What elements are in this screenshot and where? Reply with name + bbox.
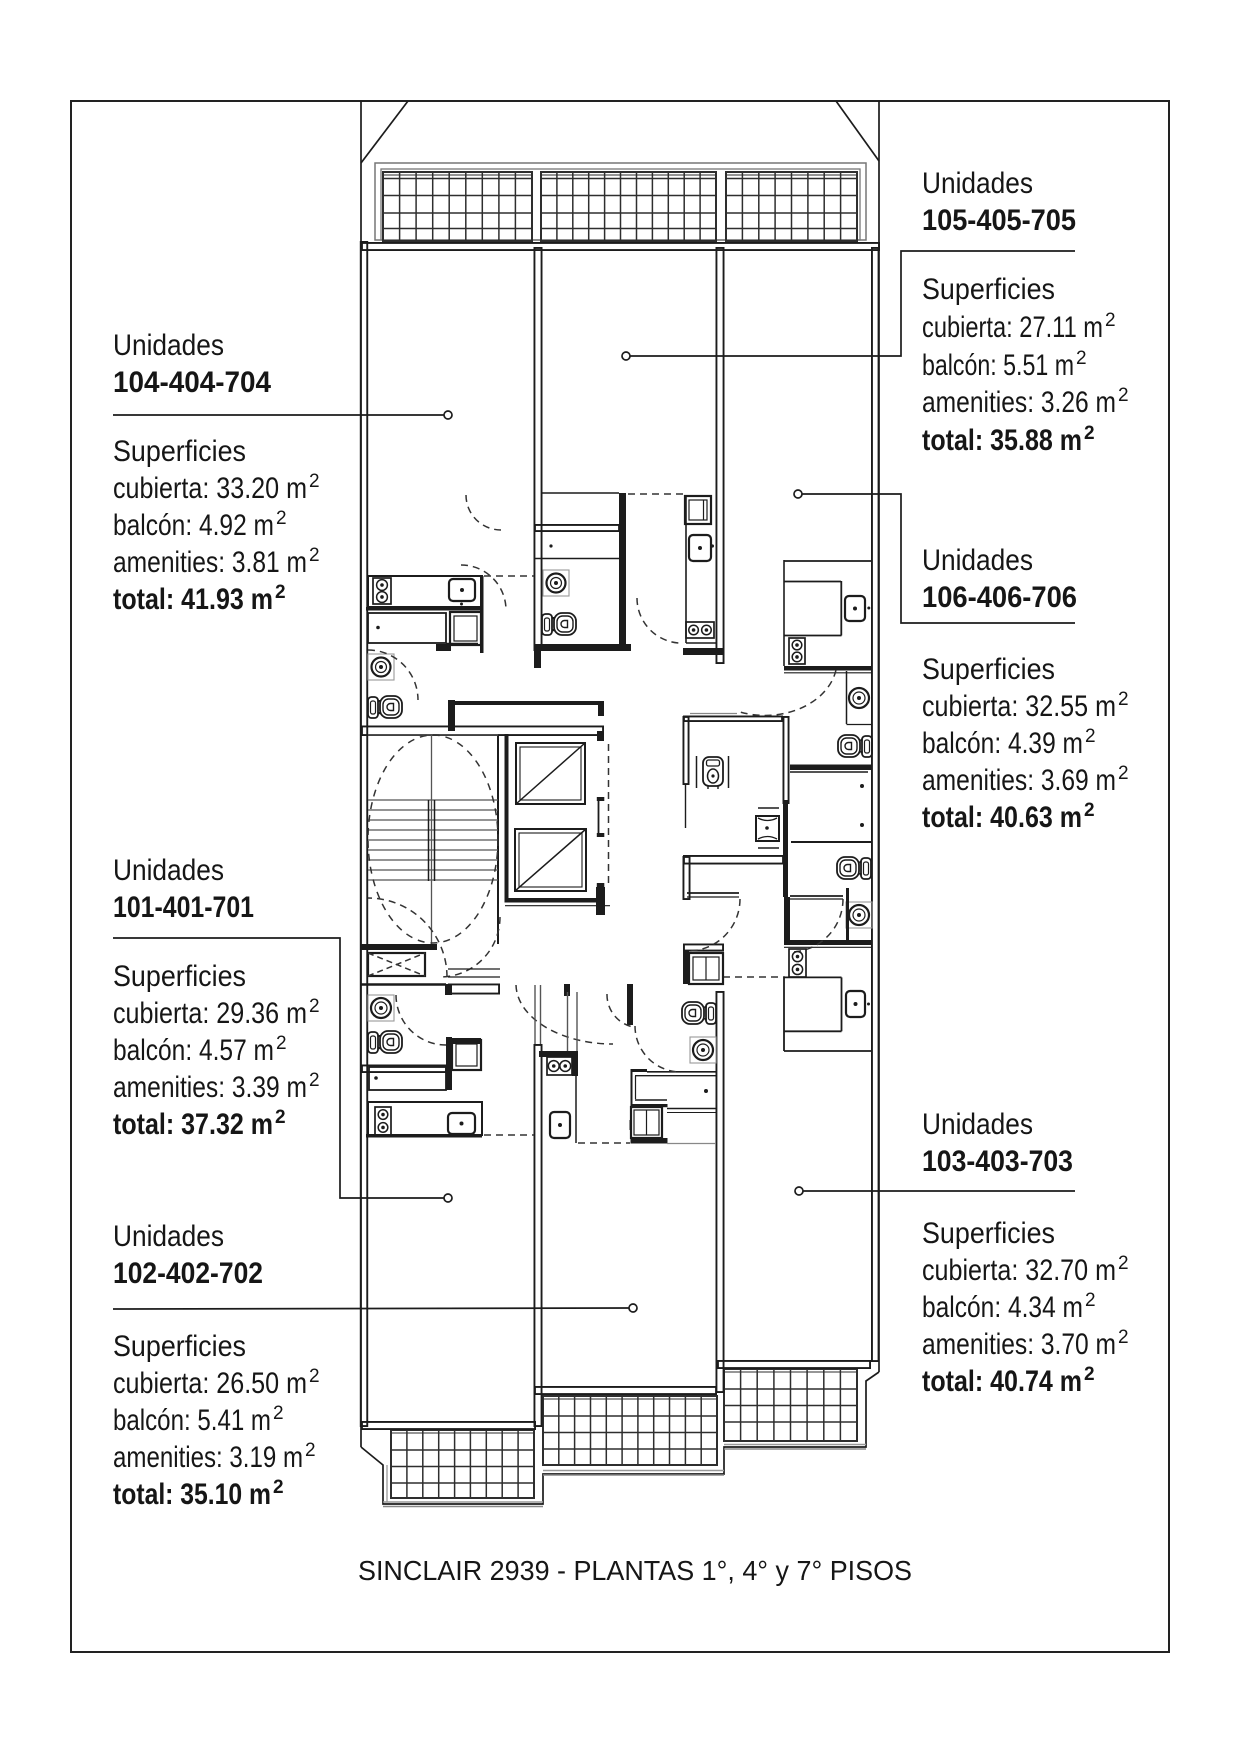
svg-text:104-404-704: 104-404-704: [113, 366, 271, 399]
svg-text:2: 2: [309, 1366, 320, 1387]
svg-text:cubierta: 32.70 m: cubierta: 32.70 m: [922, 1254, 1116, 1287]
svg-text:2: 2: [1076, 348, 1087, 369]
svg-text:2: 2: [305, 1440, 316, 1461]
svg-text:Unidades: Unidades: [922, 167, 1033, 200]
svg-text:2: 2: [273, 1477, 284, 1498]
svg-text:total: 35.10 m: total: 35.10 m: [113, 1478, 271, 1511]
svg-text:total: 37.32 m: total: 37.32 m: [113, 1108, 273, 1141]
svg-text:101-401-701: 101-401-701: [113, 891, 254, 924]
svg-text:2: 2: [1084, 423, 1095, 444]
svg-text:amenities: 3.26 m: amenities: 3.26 m: [922, 386, 1116, 419]
svg-text:102-402-702: 102-402-702: [113, 1257, 263, 1290]
svg-text:SINCLAIR 2939 - PLANTAS 1°, 4°: SINCLAIR 2939 - PLANTAS 1°, 4° y 7° PISO…: [358, 1555, 912, 1586]
svg-text:Superficies: Superficies: [922, 1217, 1055, 1250]
svg-text:balcón: 4.92 m: balcón: 4.92 m: [113, 509, 274, 542]
svg-text:2: 2: [275, 1107, 286, 1128]
svg-text:2: 2: [273, 1403, 284, 1424]
svg-text:amenities: 3.70 m: amenities: 3.70 m: [922, 1328, 1116, 1361]
svg-text:amenities: 3.69 m: amenities: 3.69 m: [922, 764, 1116, 797]
svg-text:Superficies: Superficies: [922, 653, 1055, 686]
svg-text:2: 2: [1118, 763, 1129, 784]
svg-text:Superficies: Superficies: [113, 1330, 246, 1363]
svg-text:2: 2: [309, 545, 320, 566]
svg-text:Unidades: Unidades: [113, 329, 224, 362]
svg-text:balcón: 5.41 m: balcón: 5.41 m: [113, 1404, 271, 1437]
svg-text:2: 2: [1084, 1364, 1095, 1385]
svg-text:Unidades: Unidades: [113, 1220, 224, 1253]
svg-text:2: 2: [275, 582, 286, 603]
svg-text:amenities: 3.39 m: amenities: 3.39 m: [113, 1071, 307, 1104]
svg-text:cubierta: 26.50 m: cubierta: 26.50 m: [113, 1367, 307, 1400]
svg-text:cubierta: 29.36 m: cubierta: 29.36 m: [113, 997, 307, 1030]
svg-text:amenities: 3.81 m: amenities: 3.81 m: [113, 546, 307, 579]
svg-text:2: 2: [1118, 1253, 1129, 1274]
svg-text:Superficies: Superficies: [113, 435, 246, 468]
svg-text:balcón: 4.39 m: balcón: 4.39 m: [922, 727, 1083, 760]
svg-text:Unidades: Unidades: [113, 854, 224, 887]
svg-text:2: 2: [1118, 385, 1129, 406]
svg-text:2: 2: [1118, 1327, 1129, 1348]
svg-text:2: 2: [276, 508, 287, 529]
svg-text:2: 2: [1085, 1290, 1096, 1311]
svg-text:balcón: 5.51 m: balcón: 5.51 m: [922, 349, 1074, 382]
svg-text:balcón: 4.34 m: balcón: 4.34 m: [922, 1291, 1083, 1324]
svg-text:Unidades: Unidades: [922, 1108, 1033, 1141]
svg-text:total: 40.74 m: total: 40.74 m: [922, 1365, 1082, 1398]
svg-text:total: 40.63 m: total: 40.63 m: [922, 801, 1082, 834]
svg-text:2: 2: [276, 1033, 287, 1054]
svg-text:cubierta: 27.11 m: cubierta: 27.11 m: [922, 311, 1103, 344]
svg-text:Superficies: Superficies: [113, 960, 246, 993]
svg-text:2: 2: [1084, 800, 1095, 821]
svg-text:2: 2: [1105, 310, 1116, 331]
svg-text:Superficies: Superficies: [922, 273, 1055, 306]
svg-text:2: 2: [309, 1070, 320, 1091]
svg-text:106-406-706: 106-406-706: [922, 581, 1077, 614]
svg-text:Unidades: Unidades: [922, 544, 1033, 577]
svg-text:103-403-703: 103-403-703: [922, 1145, 1073, 1178]
svg-text:2: 2: [1118, 689, 1129, 710]
svg-text:balcón: 4.57 m: balcón: 4.57 m: [113, 1034, 274, 1067]
svg-text:2: 2: [309, 471, 320, 492]
svg-text:cubierta: 33.20 m: cubierta: 33.20 m: [113, 472, 307, 505]
svg-text:total: 41.93 m: total: 41.93 m: [113, 583, 273, 616]
svg-text:2: 2: [309, 996, 320, 1017]
svg-text:105-405-705: 105-405-705: [922, 204, 1076, 237]
svg-text:amenities: 3.19 m: amenities: 3.19 m: [113, 1441, 303, 1474]
svg-text:2: 2: [1085, 726, 1096, 747]
svg-text:cubierta: 32.55 m: cubierta: 32.55 m: [922, 690, 1116, 723]
svg-text:total: 35.88 m: total: 35.88 m: [922, 424, 1082, 457]
